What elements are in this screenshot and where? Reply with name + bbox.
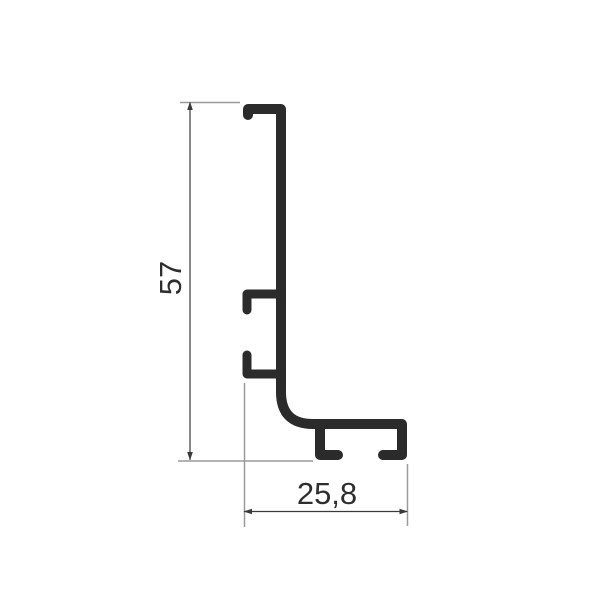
profile-shape	[247, 109, 402, 455]
height-dimension: 57	[153, 102, 313, 462]
profile-upper-hook	[247, 294, 281, 310]
drawing-canvas: 57 25,8	[0, 0, 600, 600]
width-dimension-label: 25,8	[297, 476, 357, 511]
height-arrow-bottom-icon	[187, 452, 193, 461]
width-arrow-right-icon	[400, 509, 409, 515]
technical-drawing: 57 25,8	[0, 0, 600, 600]
profile-lower-hook	[247, 355, 281, 374]
height-dimension-label: 57	[153, 261, 188, 295]
profile-main-outline	[248, 109, 402, 455]
